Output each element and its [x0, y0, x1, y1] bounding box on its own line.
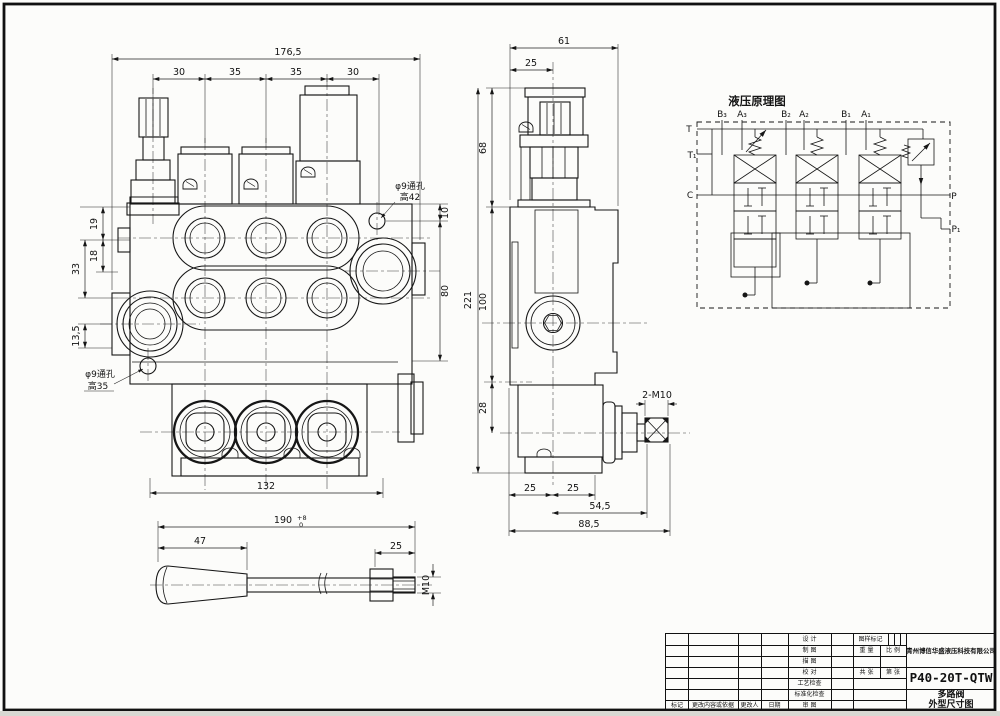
dim-length-190: 190 — [274, 515, 292, 526]
dim-bottom-25a: 25 — [524, 483, 536, 494]
sign-row-standard: 标准化检查 — [788, 689, 831, 700]
port-c: C — [687, 191, 693, 201]
dim-left-13-5: 13,5 — [71, 325, 82, 346]
note-hole-top-line1: φ9通孔 — [395, 181, 425, 192]
product-name: 多路阀 — [937, 690, 964, 700]
lever-boot — [296, 86, 360, 204]
valve-section-1 — [859, 129, 901, 286]
joystick-joint — [603, 402, 668, 463]
note-m10: M10 — [421, 575, 432, 595]
schematic-title: 液压原理图 — [728, 94, 786, 108]
sign-row-process: 工艺检查 — [788, 678, 831, 689]
drawing-name: 外型尺寸图 — [928, 700, 973, 710]
dim-left-18: 18 — [89, 250, 100, 262]
dim-spacing-3: 35 — [290, 67, 302, 78]
hydraulic-schematic: 液压原理图 T T₁ C P P₁ B₃ A₃ B₂ A₂ B₁ A₁ — [685, 94, 961, 308]
dim-height-68: 68 — [478, 142, 489, 154]
sign-row-trace: 描 图 — [788, 656, 831, 667]
note-hole-top-line2: 高42 — [400, 191, 420, 203]
rev-mark-label: 标记 — [666, 700, 688, 711]
sign-row-check: 校 对 — [788, 667, 831, 678]
review-label: 审 图 — [788, 700, 831, 711]
dim-bottom-25b: 25 — [567, 483, 579, 494]
dim-spacing-2: 35 — [229, 67, 241, 78]
port-t: T — [685, 125, 692, 135]
rev-changer-label: 更改人 — [738, 700, 761, 711]
dim-bottom-88-5: 88,5 — [578, 519, 599, 530]
scale-label: 比 例 — [880, 645, 906, 656]
dim-thread-25: 25 — [390, 541, 402, 552]
total-sheets-label: 共 张 — [853, 667, 880, 678]
dim-height-100: 100 — [478, 293, 489, 311]
dim-width-25: 25 — [525, 58, 537, 69]
front-view-dimensions: 176,5 30 35 35 30 19 18 3 — [71, 47, 451, 498]
note-hole-bottom-line2: 高35 — [88, 380, 108, 392]
handle-view: 190 +8 0 47 25 M10 — [150, 514, 441, 606]
rev-content-label: 更改内容或依据 — [688, 700, 738, 711]
dim-left-19: 19 — [89, 218, 100, 230]
port-p1: P₁ — [951, 225, 960, 235]
drawing-sheet: 176,5 30 35 35 30 19 18 3 — [0, 0, 1000, 716]
drawing-title: 多路阀 外型尺寸图 — [906, 689, 996, 711]
port-a2: A₂ — [799, 110, 809, 120]
dim-left-33: 33 — [71, 263, 82, 275]
model-number: P40-20T-QTW — [906, 667, 996, 689]
front-view: 176,5 30 35 35 30 19 18 3 — [71, 47, 451, 498]
sign-row-design: 设 计 — [788, 634, 831, 645]
note-2-m10: 2-M10 — [642, 390, 672, 401]
title-block: 设 计 制 图 描 图 校 对 工艺检查 标准化检查 标记 更改内容或依据 更改… — [665, 633, 995, 710]
dim-length-tol-lower: 0 — [299, 521, 303, 529]
dim-spacing-4: 30 — [347, 67, 359, 78]
relief-valve-symbol — [902, 129, 950, 229]
sheet-no-label: 第 张 — [880, 667, 906, 678]
weight-label: 重 量 — [853, 645, 880, 656]
mark-header: 图样标记 — [853, 634, 888, 645]
dim-overall-width: 176,5 — [274, 47, 301, 58]
scan-edge — [0, 711, 1000, 716]
port-t1: T₁ — [686, 151, 696, 161]
rev-date-label: 日期 — [761, 700, 788, 711]
dim-right-80: 80 — [440, 285, 451, 297]
valve-section-2 — [796, 129, 838, 286]
valve-section-3 — [734, 129, 776, 298]
side-view: 61 25 68 221 100 28 25 25 54,5 88, — [463, 36, 690, 536]
dim-bottom-54-5: 54,5 — [589, 501, 610, 512]
drawing-canvas: 176,5 30 35 35 30 19 18 3 — [0, 0, 1000, 716]
dim-grip-47: 47 — [194, 536, 206, 547]
company-name: 青州博信华盛液压科技有限公司 — [906, 634, 996, 667]
dim-height-28: 28 — [478, 402, 489, 414]
port-b1: B₁ — [841, 110, 851, 120]
dim-right-10: 10 — [440, 207, 451, 219]
port-p: P — [951, 192, 957, 202]
dim-width-61: 61 — [558, 36, 570, 47]
port-a1: A₁ — [861, 110, 871, 120]
dim-height-221: 221 — [463, 291, 474, 309]
note-hole-bottom-line1: φ9通孔 — [85, 369, 115, 380]
dim-bottom-132: 132 — [257, 481, 275, 492]
sign-row-draft: 制 图 — [788, 645, 831, 656]
port-b2: B₂ — [781, 110, 791, 120]
port-a3: A₃ — [737, 110, 747, 120]
port-b3: B₃ — [717, 110, 727, 120]
relief-valve-side — [518, 88, 590, 207]
dim-spacing-1: 30 — [173, 67, 185, 78]
